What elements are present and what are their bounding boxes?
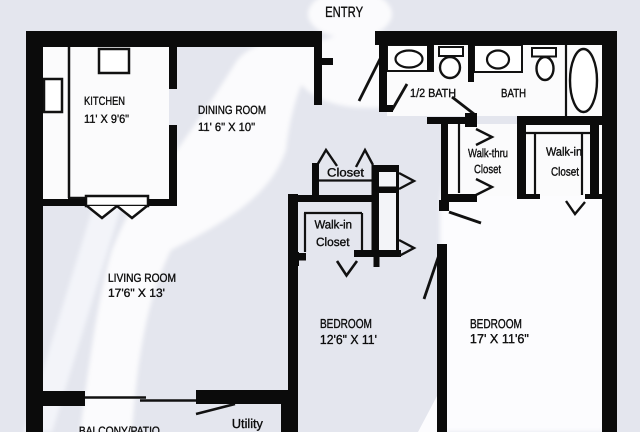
svg-text:BEDROOM: BEDROOM: [470, 316, 522, 331]
svg-text:KITCHEN: KITCHEN: [84, 94, 125, 108]
svg-text:17' X 11'6": 17' X 11'6": [470, 331, 529, 346]
svg-text:17'6" X 13': 17'6" X 13': [108, 286, 165, 300]
svg-text:DINING ROOM: DINING ROOM: [198, 103, 266, 117]
svg-text:11' 6" X 10": 11' 6" X 10": [198, 120, 255, 134]
svg-text:Closet: Closet: [327, 166, 365, 180]
svg-text:BATH: BATH: [501, 86, 526, 100]
svg-text:ENTRY: ENTRY: [325, 4, 363, 21]
svg-text:Walk-in: Walk-in: [314, 217, 352, 231]
svg-text:12'6" X 11': 12'6" X 11': [320, 332, 377, 347]
svg-text:LIVING ROOM: LIVING ROOM: [108, 271, 176, 285]
svg-text:Closet: Closet: [551, 165, 580, 179]
svg-text:Walk-in: Walk-in: [546, 145, 582, 159]
svg-text:11' X 9'6": 11' X 9'6": [84, 112, 129, 126]
svg-text:1/2 BATH: 1/2 BATH: [410, 86, 456, 100]
svg-text:Walk-thru: Walk-thru: [468, 146, 508, 160]
svg-text:BALCONY/PATIO: BALCONY/PATIO: [79, 424, 160, 432]
svg-text:Closet: Closet: [316, 235, 350, 249]
svg-text:Utility: Utility: [232, 416, 263, 431]
svg-text:BEDROOM: BEDROOM: [320, 316, 372, 331]
svg-text:Closet: Closet: [474, 162, 502, 176]
